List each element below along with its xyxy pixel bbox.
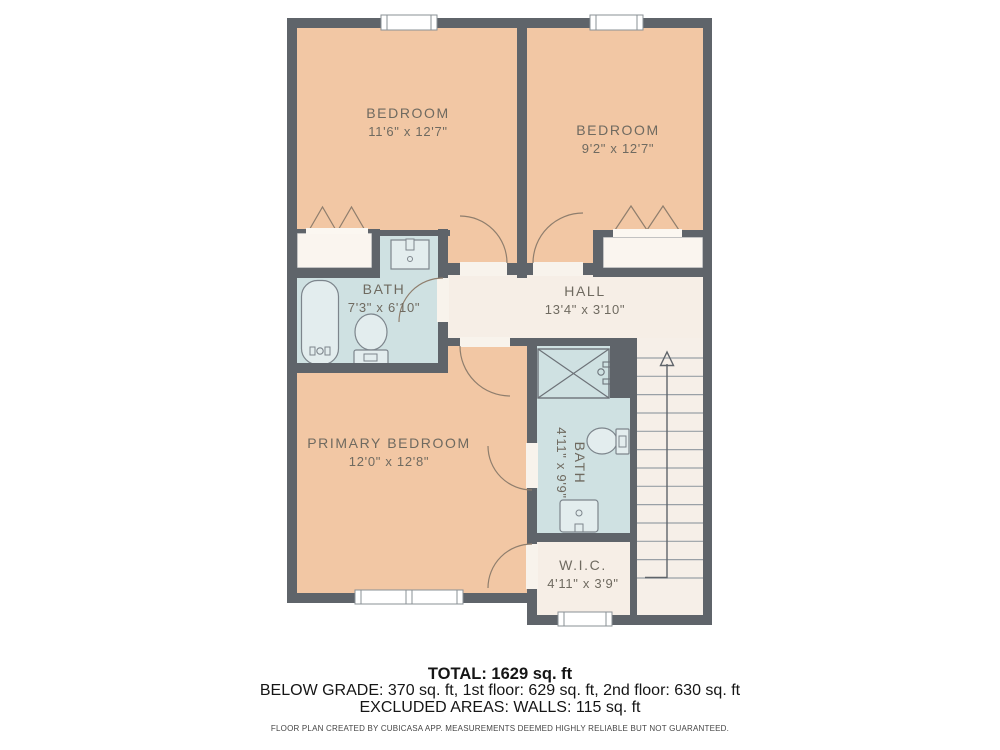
room-name: HALL [545, 283, 625, 299]
floor-plan-page: BEDROOM 11'6" x 12'7" BEDROOM 9'2" x 12'… [0, 0, 1000, 750]
room-name: BEDROOM [366, 105, 450, 121]
bedroom-1-door-opening [460, 262, 507, 276]
bedroom-1-closet [297, 233, 372, 268]
toilet-bowl [355, 314, 387, 350]
room-dimensions: 7'3" x 6'10" [348, 300, 420, 315]
room-name: BATH [572, 427, 588, 499]
bedroom-2-label: BEDROOM 9'2" x 12'7" [576, 122, 660, 156]
excluded-areas-text: EXCLUDED AREAS: WALLS: 115 sq. ft [0, 700, 1000, 716]
hall-label: HALL 13'4" x 3'10" [545, 283, 625, 317]
room-name: PRIMARY BEDROOM [307, 435, 471, 451]
room-dimensions: 9'2" x 12'7" [576, 141, 660, 156]
closet-1-opening [306, 228, 368, 234]
primary-bedroom-window [355, 590, 463, 604]
room-name: W.I.C. [547, 557, 619, 573]
bath-2-label: BATH 4'11" x 9'9" [554, 427, 588, 499]
bedroom-2-window [590, 15, 643, 30]
room-name: BATH [348, 281, 420, 297]
room-name: BEDROOM [576, 122, 660, 138]
bedroom-1-window [381, 15, 437, 30]
bath-1-door-opening [437, 278, 449, 322]
staircase-floor [637, 338, 703, 615]
bath-1-label: BATH 7'3" x 6'10" [348, 281, 420, 315]
wic-label: W.I.C. 4'11" x 3'9" [547, 557, 619, 591]
bedroom-1-label: BEDROOM 11'6" x 12'7" [366, 105, 450, 139]
area-summary: TOTAL: 1629 sq. ft BELOW GRADE: 370 sq. … [0, 666, 1000, 717]
wic-door-opening [526, 544, 538, 589]
toilet-tank [354, 350, 388, 365]
room-dimensions: 4'11" x 3'9" [547, 576, 619, 591]
room-dimensions: 12'0" x 12'8" [307, 454, 471, 469]
bedroom-2-closet [603, 237, 703, 268]
floor-plan-drawing [0, 0, 1000, 750]
bathtub [302, 281, 339, 365]
room-dimensions: 13'4" x 3'10" [545, 302, 625, 317]
sink-faucet [406, 239, 414, 250]
closet-2-opening [613, 229, 682, 237]
room-dimensions: 4'11" x 9'9" [554, 427, 569, 499]
toilet-bowl [587, 428, 617, 454]
bath-2-door-opening [526, 443, 538, 488]
bedroom-2-door-opening [533, 262, 583, 276]
primary-bedroom-floor [297, 373, 527, 593]
primary-bedroom-door-opening [460, 337, 510, 347]
wic-window [558, 612, 612, 626]
total-area-text: TOTAL: 1629 sq. ft [0, 666, 1000, 682]
floor-breakdown-text: BELOW GRADE: 370 sq. ft, 1st floor: 629 … [0, 683, 1000, 699]
primary-bedroom-label: PRIMARY BEDROOM 12'0" x 12'8" [307, 435, 471, 469]
cubicasa-disclaimer-text: FLOOR PLAN CREATED BY CUBICASA APP. MEAS… [0, 724, 1000, 733]
toilet-tank [616, 429, 629, 454]
room-dimensions: 11'6" x 12'7" [366, 124, 450, 139]
